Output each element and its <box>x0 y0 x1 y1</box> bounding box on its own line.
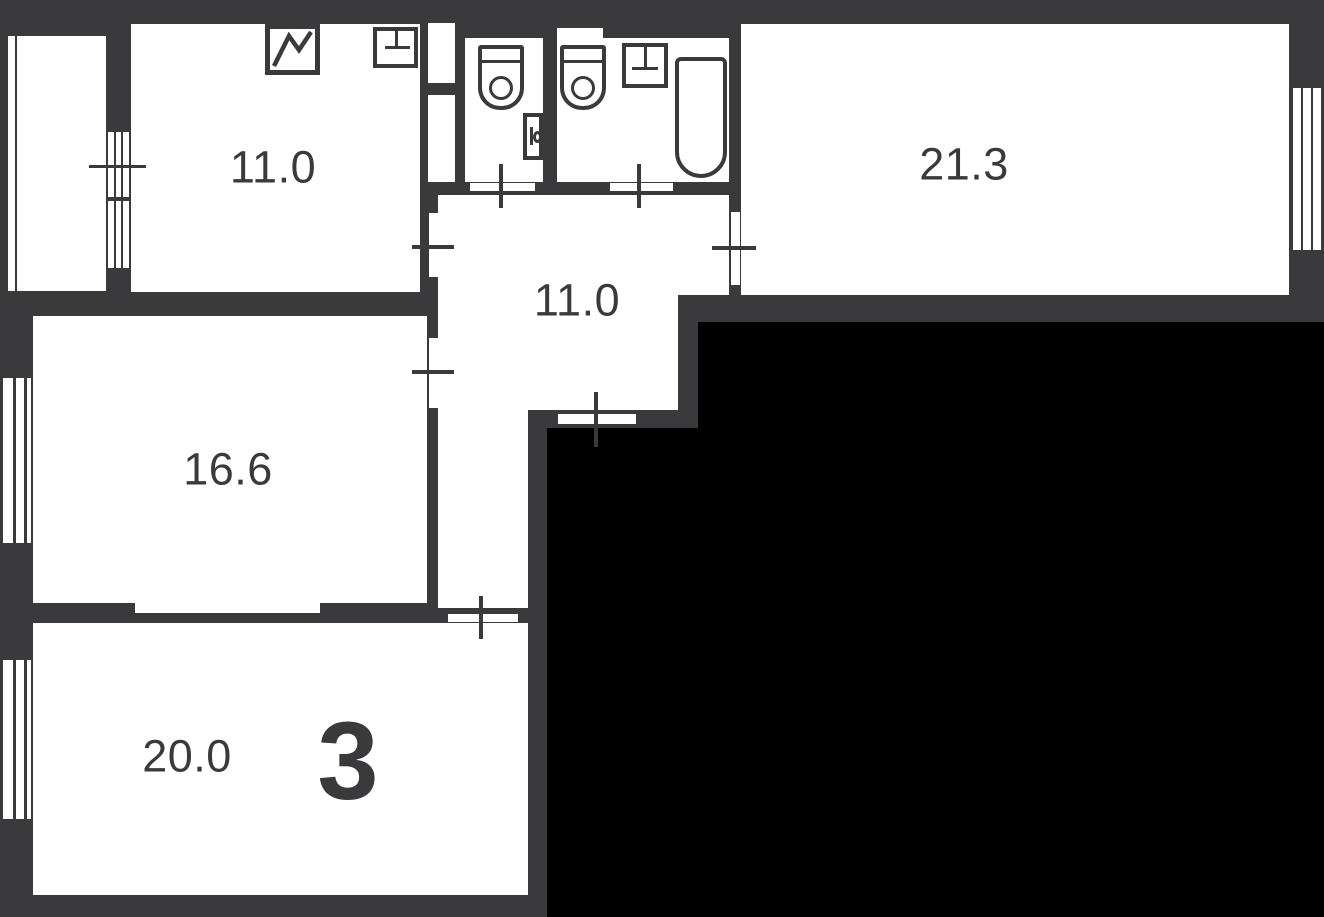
kitchen-door-tick <box>412 245 454 249</box>
living-room-floor <box>741 24 1289 295</box>
stove-icon <box>265 24 320 75</box>
washbasin-tap-stem <box>644 47 647 68</box>
masked-region <box>547 428 698 917</box>
duct-niche-upper <box>428 23 455 83</box>
living-room-window-icon <box>1293 88 1321 250</box>
wc-washbasin-tap-bump <box>533 131 542 143</box>
living-room-area-label: 21.3 <box>919 142 1009 187</box>
hallway-area-label: 11.0 <box>534 278 620 323</box>
balcony-door-tick <box>89 165 146 168</box>
bedroom-1-area-label: 16.6 <box>183 447 273 492</box>
washbasin-tap-bar <box>632 67 658 70</box>
bedroom-2-floor <box>33 623 528 895</box>
kitchen-sink-tap-bar <box>385 46 410 49</box>
kitchen-area-label: 11.0 <box>230 145 316 190</box>
bedroom-1-window-mullion <box>24 378 27 543</box>
bedroom-2-area-label: 20.0 <box>142 734 232 779</box>
toilet-bowl-circle <box>489 76 513 100</box>
living-room-door-tick <box>712 246 756 250</box>
bathroom-wall-step <box>603 28 729 38</box>
bedroom-1-floor-step <box>135 603 320 613</box>
toilet-bowl-circle <box>571 76 595 100</box>
wc-door-tick <box>499 164 503 208</box>
toilet-tank-line <box>560 60 606 63</box>
bedroom-2-door-tick <box>479 596 483 639</box>
toilet-tank-line <box>478 60 524 63</box>
balcony-rail-line <box>15 36 17 291</box>
bedroom-1-door-tick <box>412 370 454 374</box>
duct-niche-lower <box>428 95 455 182</box>
entry-door-tick <box>594 392 598 447</box>
room-count-label: 3 <box>317 707 378 817</box>
floor-plan: 11.0 21.3 11.0 16.6 20.0 3 <box>0 0 1324 917</box>
living-room-window-mullion <box>1301 88 1303 250</box>
bathroom-door-opening <box>610 183 673 191</box>
stove-zigzag <box>270 29 315 70</box>
bathtub-icon <box>675 57 727 178</box>
hallway-floor-corridor <box>438 410 528 608</box>
bedroom-2-window-mullion <box>24 660 27 819</box>
bathroom-door-tick <box>637 164 641 208</box>
bedroom-1-window-mullion <box>13 378 16 543</box>
bedroom-2-window-mullion <box>13 660 16 819</box>
masked-region <box>698 322 1324 917</box>
living-room-window-mullion <box>1311 88 1313 250</box>
balcony-floor <box>8 36 106 291</box>
balcony-window-transom <box>108 197 129 201</box>
bedroom-2-door-opening <box>448 614 518 622</box>
